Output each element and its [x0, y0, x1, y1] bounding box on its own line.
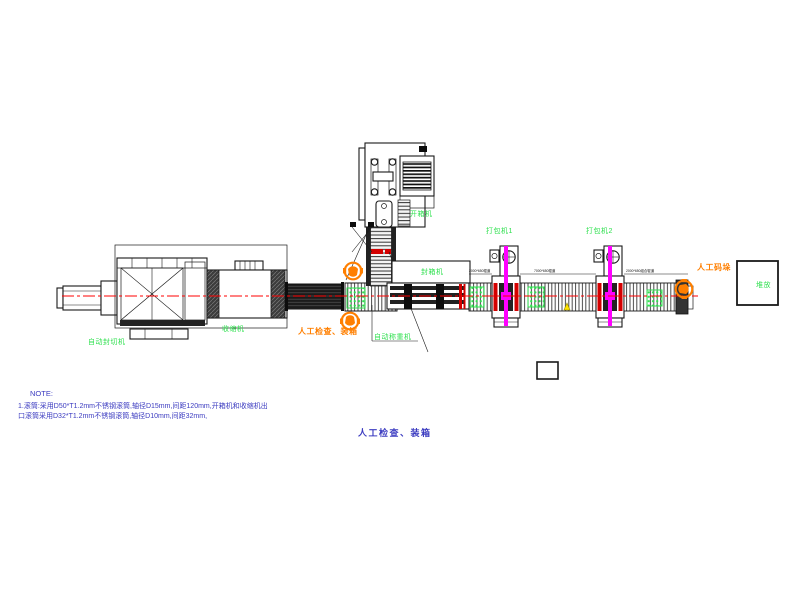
- note-heading: NOTE:: [30, 389, 53, 398]
- label-stacking-area: 堆放: [756, 280, 771, 289]
- strapping-machine-1: [490, 246, 520, 327]
- small-square-box: [537, 362, 558, 379]
- conveyor-segment-2: 7000*650辊道: [520, 268, 596, 311]
- note-line-1: 1.滚筒:采用D50*T1.2mm不锈钢滚筒,轴径D15mm,间距120mm,开…: [18, 401, 268, 410]
- label-checkweigher: 自动称重机: [374, 332, 412, 341]
- dim-label-seg2: 7000*650辊道: [534, 268, 556, 273]
- label-case-sealer: 封箱机: [421, 267, 444, 276]
- product-box: [470, 287, 484, 307]
- infeed-conveyor: [57, 281, 117, 315]
- shrink-machine: [207, 261, 291, 318]
- dim-label-seg3: 2000*650组合辊道: [626, 268, 655, 273]
- label-shrink-machine: 收缩机: [222, 324, 245, 333]
- strap-band: [504, 246, 508, 326]
- cad-drawing-svg: 2000*650辊道 7000*650辊道: [0, 0, 800, 600]
- conveyor-segment-1: 2000*650辊道: [469, 268, 492, 311]
- tunnel-entry-cap: [207, 270, 219, 318]
- label-strapper-2: 打包机2: [586, 226, 613, 235]
- operator-icon-check-top: [343, 263, 363, 280]
- product-box: [347, 288, 365, 308]
- strapping-machine-2: [594, 246, 624, 327]
- packaging-line-drawing: 2000*650辊道 7000*650辊道: [0, 0, 800, 600]
- label-strapper-1: 打包机1: [486, 226, 513, 235]
- label-auto-seal-cut-machine: 自动封切机: [88, 337, 126, 346]
- label-manual-check-pack: 人工检查、装箱: [298, 326, 358, 336]
- erector-magazine: [403, 162, 431, 190]
- product-box: [528, 287, 544, 307]
- strap-band: [608, 246, 612, 326]
- label-manual-palletizing: 人工码垛: [697, 262, 731, 272]
- tunnel-exit-cap: [271, 270, 285, 318]
- note-block: NOTE: 1.滚筒:采用D50*T1.2mm不锈钢滚筒,轴径D15mm,间距1…: [18, 389, 268, 420]
- dim-label-seg1: 2000*650辊道: [469, 268, 491, 273]
- note-line-2: 口滚筒采用D32*T1.2mm不锈钢滚筒,轴径D10mm,间距32mm,: [18, 411, 207, 420]
- label-case-erector: 开箱机: [410, 209, 433, 218]
- label-manual-check-pack-note: 人工检查、装箱: [357, 427, 432, 438]
- product-box: [647, 290, 662, 306]
